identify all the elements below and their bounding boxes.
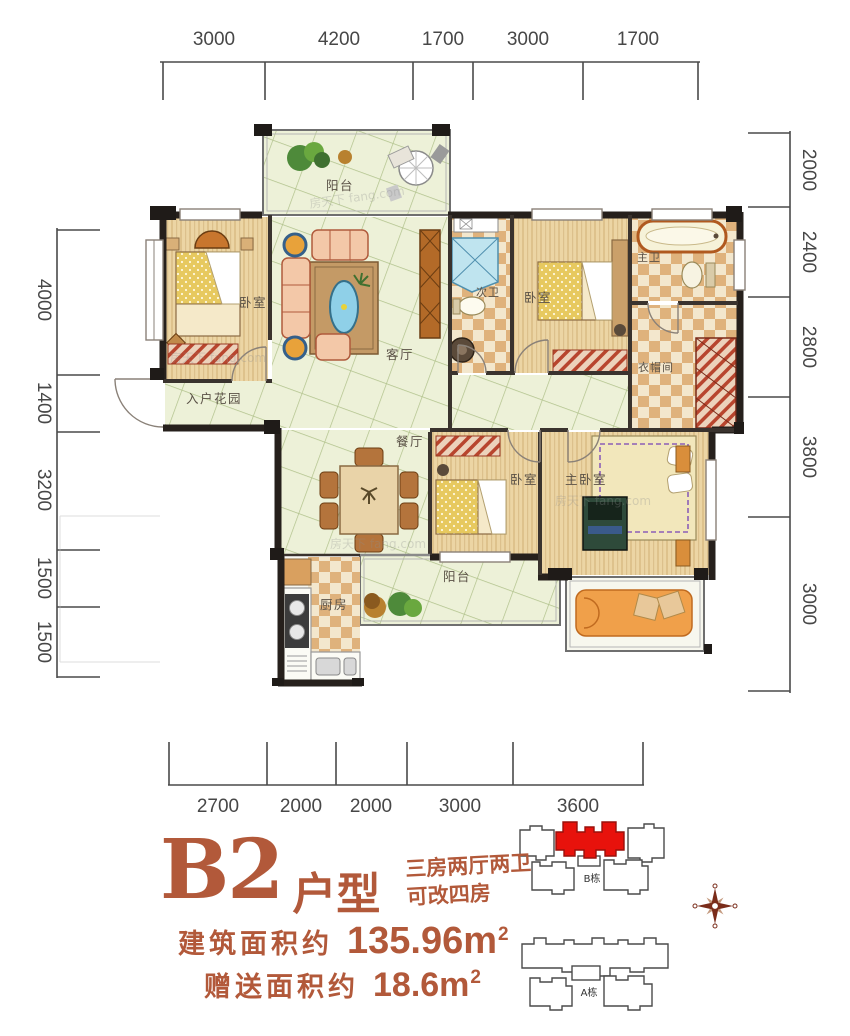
built-area-sup: 2 bbox=[498, 924, 509, 946]
dim-label: 1700 bbox=[617, 29, 659, 50]
dim-label: 2000 bbox=[798, 149, 819, 191]
scale-line bbox=[748, 131, 790, 693]
built-area-row: 建筑面积约 135.96m 2 bbox=[178, 920, 598, 963]
unit-code: B2 bbox=[160, 832, 282, 910]
bedroom3-bed bbox=[436, 436, 506, 534]
dim-label: 1400 bbox=[33, 382, 54, 424]
gift-area-sup: 2 bbox=[470, 967, 481, 989]
living-tv-cabinet bbox=[420, 230, 440, 338]
dimension-scale-left: 4000 1400 3200 1500 1500 bbox=[33, 228, 100, 678]
dim-label: 4000 bbox=[33, 279, 54, 321]
keyplan-building-b: B栋 bbox=[520, 822, 664, 894]
scale-line bbox=[168, 742, 644, 785]
dimension-scale-bottom: 2700 2000 2000 3000 3600 bbox=[168, 742, 644, 817]
room-label-bedroom2: 卧室 bbox=[524, 290, 552, 305]
unit-info-block: B2 户型 三房两厅两卫 可改四房 建筑面积约 135.96m 2 赠送面积约 … bbox=[160, 832, 532, 922]
dim-label: 2800 bbox=[798, 326, 819, 368]
room-label-dining: 餐厅 bbox=[396, 434, 424, 449]
neighbor-outline bbox=[60, 516, 160, 662]
svg-text:房天下 fang.com: 房天下 fang.com bbox=[555, 493, 651, 508]
dim-label: 1500 bbox=[33, 557, 54, 599]
room-label-living: 客厅 bbox=[386, 347, 414, 362]
dim-label: 2000 bbox=[280, 796, 322, 817]
room-label-entry-garden: 入户花园 bbox=[186, 391, 242, 406]
room-label-master-bath: 主卫 bbox=[637, 251, 661, 264]
living-sofa-set bbox=[282, 230, 378, 360]
room-balcony-bottom bbox=[360, 555, 560, 625]
dim-label: 3000 bbox=[193, 29, 235, 50]
svg-text:房天下 fang.com: 房天下 fang.com bbox=[170, 350, 266, 365]
dim-label: 3600 bbox=[557, 796, 599, 817]
room-label-bedroom3: 卧室 bbox=[510, 472, 538, 487]
dim-label: 2000 bbox=[350, 796, 392, 817]
dim-label: 3200 bbox=[33, 469, 54, 511]
scale-line bbox=[160, 62, 700, 100]
floorplan-page: 3000 4200 1700 3000 1700 2700 2000 2000 … bbox=[0, 0, 850, 1036]
dim-label: 4200 bbox=[318, 29, 360, 50]
cloakroom-wardrobe bbox=[696, 338, 736, 428]
room-label-cloakroom: 衣帽间 bbox=[638, 360, 674, 374]
compass-icon bbox=[693, 884, 737, 928]
keyplan-b-label: B栋 bbox=[584, 872, 601, 885]
unit-description: 三房两厅两卫 可改四房 bbox=[405, 849, 534, 912]
room-label-bedroom1: 卧室 bbox=[239, 295, 267, 310]
room-label-balcony-bottom: 阳台 bbox=[443, 569, 471, 584]
dimension-scale-right: 2000 2400 2800 3800 3000 bbox=[748, 131, 819, 693]
dim-label: 3000 bbox=[798, 583, 819, 625]
svg-text:房天下 fang.com: 房天下 fang.com bbox=[330, 536, 426, 551]
built-area-value: 135.96m bbox=[347, 920, 497, 963]
room-label-balcony-top: 阳台 bbox=[326, 178, 354, 193]
dim-label: 3800 bbox=[798, 436, 819, 478]
room-label-kitchen: 厨房 bbox=[320, 597, 348, 612]
dim-label: 1700 bbox=[422, 29, 464, 50]
corner-balcony-sofa bbox=[576, 590, 692, 636]
built-area-label: 建筑面积约 bbox=[178, 922, 333, 961]
dim-label: 2700 bbox=[197, 796, 239, 817]
unit-title-row: B2 户型 三房两厅两卫 可改四房 bbox=[160, 832, 532, 922]
dim-label: 2400 bbox=[798, 231, 819, 273]
gift-area-row: 赠送面积约 18.6m 2 bbox=[204, 965, 598, 1005]
unit-type-suffix: 户型 bbox=[292, 858, 380, 922]
floor-plan: 房天下 fang.com 房天下 fang.com 房天下 fang.com 房… bbox=[60, 124, 745, 686]
area-info: 建筑面积约 135.96m 2 赠送面积约 18.6m 2 bbox=[178, 920, 598, 1007]
dim-label: 1500 bbox=[33, 621, 54, 663]
keyplan-highlight-units bbox=[556, 822, 624, 858]
room-label-bath2: 次卫 bbox=[476, 285, 500, 299]
dim-label: 3000 bbox=[507, 29, 549, 50]
dim-label: 3000 bbox=[439, 796, 481, 817]
gift-area-value: 18.6m bbox=[373, 966, 469, 1005]
room-label-master-bedroom: 主卧室 bbox=[565, 472, 607, 487]
scale-line bbox=[57, 228, 100, 678]
unit-desc-line2: 可改四房 bbox=[406, 877, 533, 912]
gift-area-label: 赠送面积约 bbox=[204, 965, 359, 1004]
dimension-scale-top: 3000 4200 1700 3000 1700 bbox=[160, 29, 700, 100]
